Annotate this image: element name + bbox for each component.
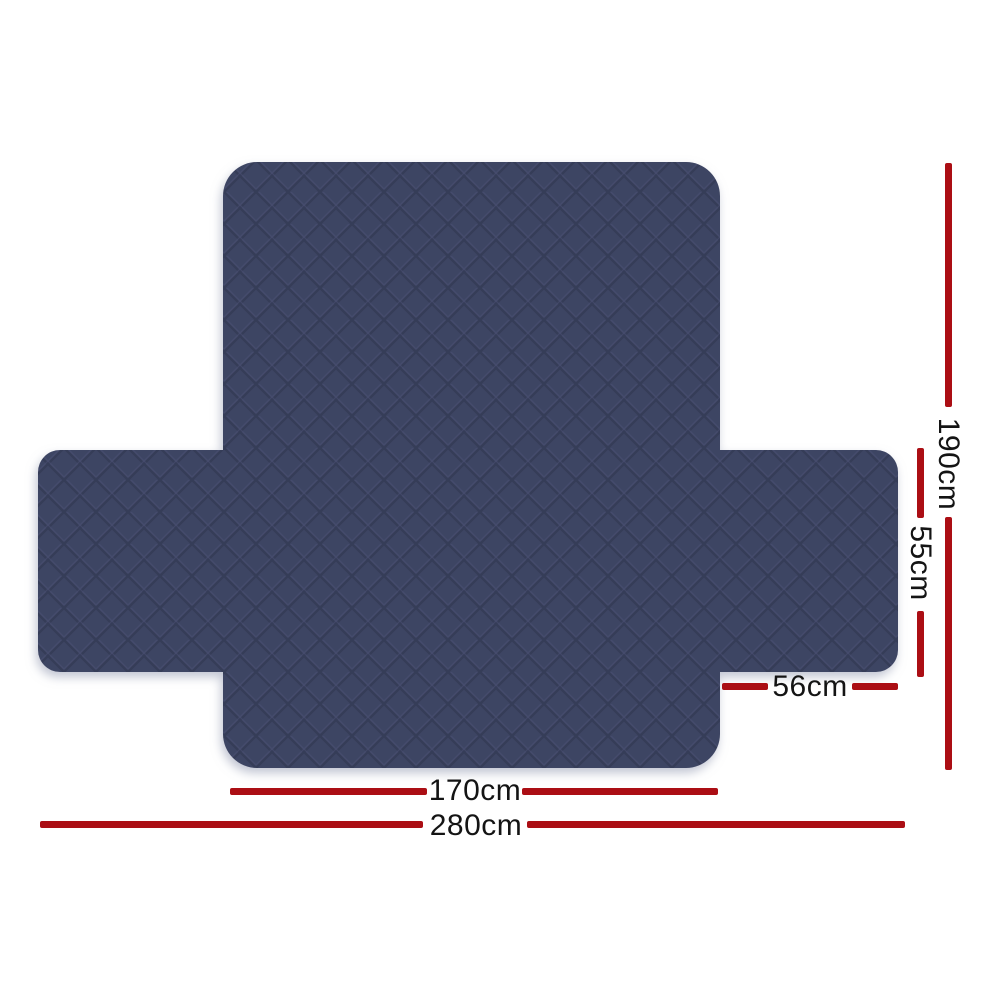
dimension-line-190cm-upper-segment: [945, 163, 952, 407]
sofa-cover-shape: [0, 0, 1000, 1000]
quilted-fabric: [38, 162, 898, 768]
dimension-line-170cm-right-segment: [522, 788, 718, 795]
dimension-line-56cm-right-segment: [852, 683, 898, 690]
dimension-line-55cm-upper-segment: [917, 448, 924, 518]
dimension-line-190cm-lower-segment: [945, 517, 952, 770]
product-dimension-diagram: 190cm 55cm 56cm 170cm 280cm: [0, 0, 1000, 1000]
dimension-line-280cm-left-segment: [40, 821, 423, 828]
dimension-label-190cm: 190cm: [933, 418, 963, 511]
dimension-line-170cm-left-segment: [230, 788, 427, 795]
cover-outline-path: [38, 162, 898, 768]
dimension-line-55cm-lower-segment: [917, 611, 924, 677]
dimension-label-56cm: 56cm: [772, 672, 847, 702]
dimension-label-170cm: 170cm: [429, 776, 522, 806]
dimension-line-280cm-right-segment: [527, 821, 905, 828]
dimension-label-280cm: 280cm: [430, 811, 523, 841]
dimension-label-55cm: 55cm: [905, 525, 935, 600]
dimension-line-56cm-left-segment: [722, 683, 768, 690]
